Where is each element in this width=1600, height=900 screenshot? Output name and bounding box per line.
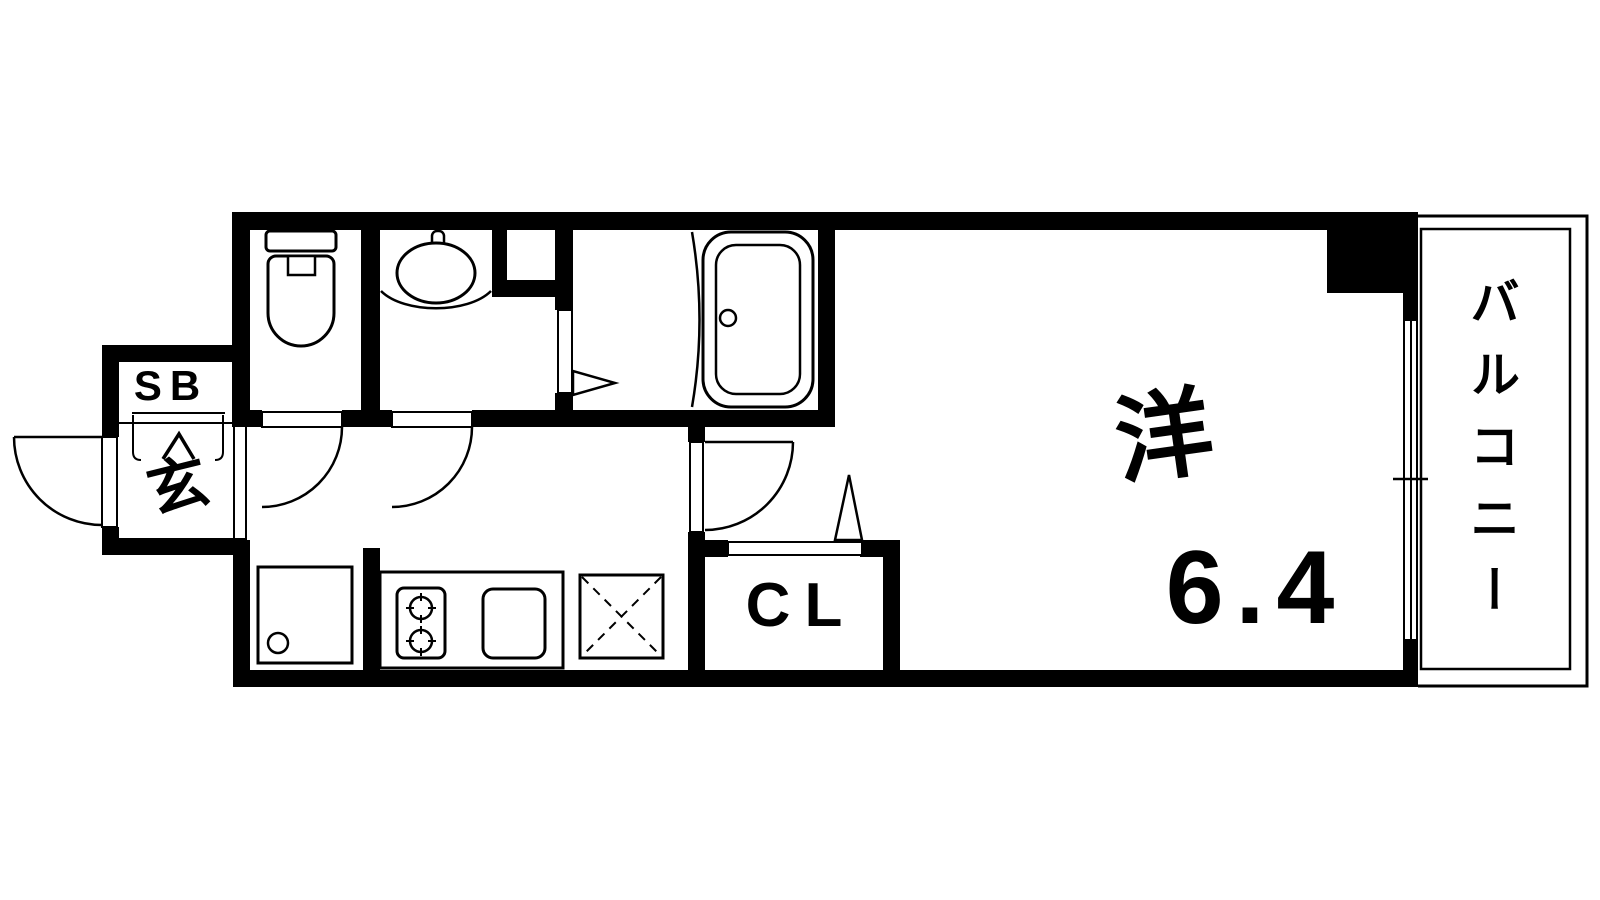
- kitchen-sink-icon: [483, 589, 545, 658]
- washroom-door-swing-arc: [392, 427, 472, 507]
- toilet-door-leaf: [262, 412, 342, 427]
- wall-toilet-divider: [361, 230, 380, 412]
- western-room-label: 洋: [1109, 382, 1219, 492]
- wall-closet-top-left: [688, 540, 728, 557]
- bathroom-door-leaf: [558, 310, 572, 393]
- wall-hall-seg-c: [472, 410, 835, 427]
- bathtub-drain: [720, 310, 736, 326]
- toilet-icon: [266, 231, 336, 346]
- wall-left-upper: [102, 345, 119, 437]
- balcony-window-icon: [1393, 321, 1428, 639]
- washbasin-bowl: [397, 243, 475, 303]
- wall-entrance-bottom: [102, 538, 247, 555]
- wall-bath-east: [818, 230, 835, 425]
- toilet-tank: [266, 231, 336, 251]
- wall-west: [232, 212, 250, 427]
- main-room-door-leaf: [690, 442, 703, 532]
- shoe-box-label: SB: [134, 365, 208, 407]
- washing-machine-drain: [268, 633, 288, 653]
- wall-window-cap-top: [1403, 293, 1418, 321]
- balcony-label: バルコニー: [1466, 276, 1516, 636]
- wall-door-jamb-top: [688, 425, 705, 442]
- western-room-size-label: 6.4: [1166, 536, 1347, 640]
- wall-hall-seg-a: [250, 410, 262, 427]
- entry-door-swing-arc: [14, 437, 102, 525]
- wall-kitchen-partition: [363, 548, 380, 670]
- toilet-door-swing-arc: [262, 427, 342, 507]
- washroom-door-leaf: [392, 412, 472, 427]
- floor-plan-drawing: [0, 0, 1600, 900]
- floor-plan: SB 玄 CL 洋 6.4 バルコニー: [0, 0, 1600, 900]
- kitchen-area: [258, 567, 663, 668]
- bathtub-icon: [692, 232, 813, 407]
- wall-hall-seg-b: [342, 410, 392, 427]
- wall-pipe-space-left: [492, 230, 507, 282]
- bathtub-apron-curve: [692, 232, 700, 407]
- closet-door-strip: [728, 542, 862, 555]
- wall-shoebox-top: [102, 345, 233, 362]
- wall-bottom: [233, 670, 1418, 687]
- wall-top-right-block: [1327, 230, 1418, 293]
- washbasin-icon: [381, 231, 491, 308]
- wall-closet-top-right: [860, 540, 900, 557]
- wall-bath-west-upper: [555, 230, 573, 310]
- wall-kitchen-west: [233, 540, 250, 687]
- closet-door-triangle-icon: [835, 475, 862, 540]
- closet-label: CL: [746, 575, 857, 637]
- wall-closet-east: [883, 557, 900, 672]
- toilet-lid-notch: [288, 256, 315, 275]
- bathroom-door-triangle-icon: [573, 371, 615, 395]
- refrigerator-space-diagonals: [582, 577, 661, 656]
- wall-top: [233, 212, 1418, 230]
- entry-door-leaf: [102, 437, 117, 527]
- main-room-door-swing-arc: [705, 442, 793, 530]
